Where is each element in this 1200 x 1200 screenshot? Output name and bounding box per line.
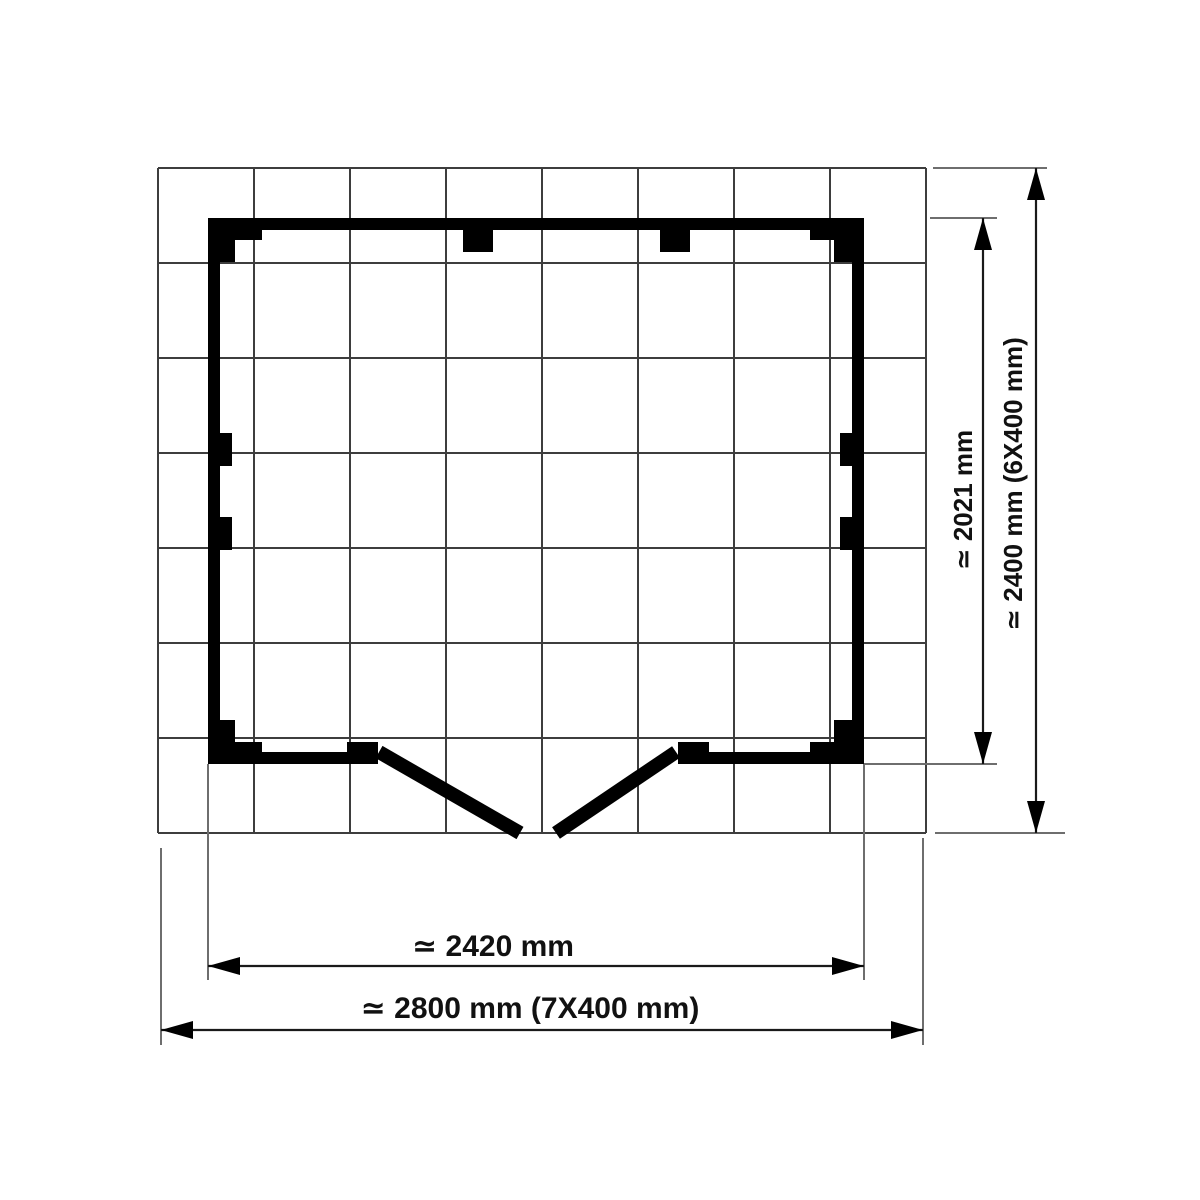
dimension-label-inner-depth: ≃ 2021 mm: [948, 430, 978, 570]
door-leaves: [379, 752, 676, 833]
door-jamb-right: [678, 742, 709, 764]
door-leaf-right: [556, 752, 676, 833]
arrowhead-left: [208, 957, 240, 975]
extension-lines: [161, 168, 1065, 1045]
door-jamb-left: [347, 742, 378, 764]
wall-stud: [220, 433, 232, 466]
wall-stud: [463, 230, 493, 252]
arrowhead-down: [974, 732, 992, 764]
dimension-label-outer-depth: ≃ 2400 mm (6X400 mm): [998, 337, 1028, 631]
dimension-label-outer-width: ≃ 2800 mm (7X400 mm): [361, 992, 700, 1025]
wall-stud: [840, 517, 852, 550]
page-canvas: ≃ 2420 mm ≃ 2800 mm (7X400 mm) ≃ 2021 mm…: [0, 0, 1200, 1200]
dimension-label-inner-width: ≃ 2420 mm: [412, 930, 574, 963]
arrowhead-right: [891, 1021, 923, 1039]
wall-stud: [660, 230, 690, 252]
dimension-outer-depth: ≃ 2400 mm (6X400 mm): [998, 168, 1045, 833]
arrowhead-right: [832, 957, 864, 975]
arrowhead-left: [161, 1021, 193, 1039]
floor-plan-drawing: ≃ 2420 mm ≃ 2800 mm (7X400 mm) ≃ 2021 mm…: [0, 0, 1200, 1200]
arrowhead-up: [1027, 168, 1045, 200]
door-leaf-left: [379, 752, 520, 833]
arrowhead-up: [974, 218, 992, 250]
dimension-inner-width: ≃ 2420 mm: [208, 930, 864, 975]
floor-grid: [158, 168, 926, 833]
dimension-inner-depth: ≃ 2021 mm: [948, 218, 992, 764]
dimension-outer-width: ≃ 2800 mm (7X400 mm): [161, 992, 923, 1039]
wall-stud: [220, 517, 232, 550]
arrowhead-down: [1027, 801, 1045, 833]
corner-block-bottom-right: [810, 720, 864, 764]
corner-block-top-right: [810, 218, 864, 262]
wall-outline: [208, 218, 864, 764]
wall-stud: [840, 433, 852, 466]
